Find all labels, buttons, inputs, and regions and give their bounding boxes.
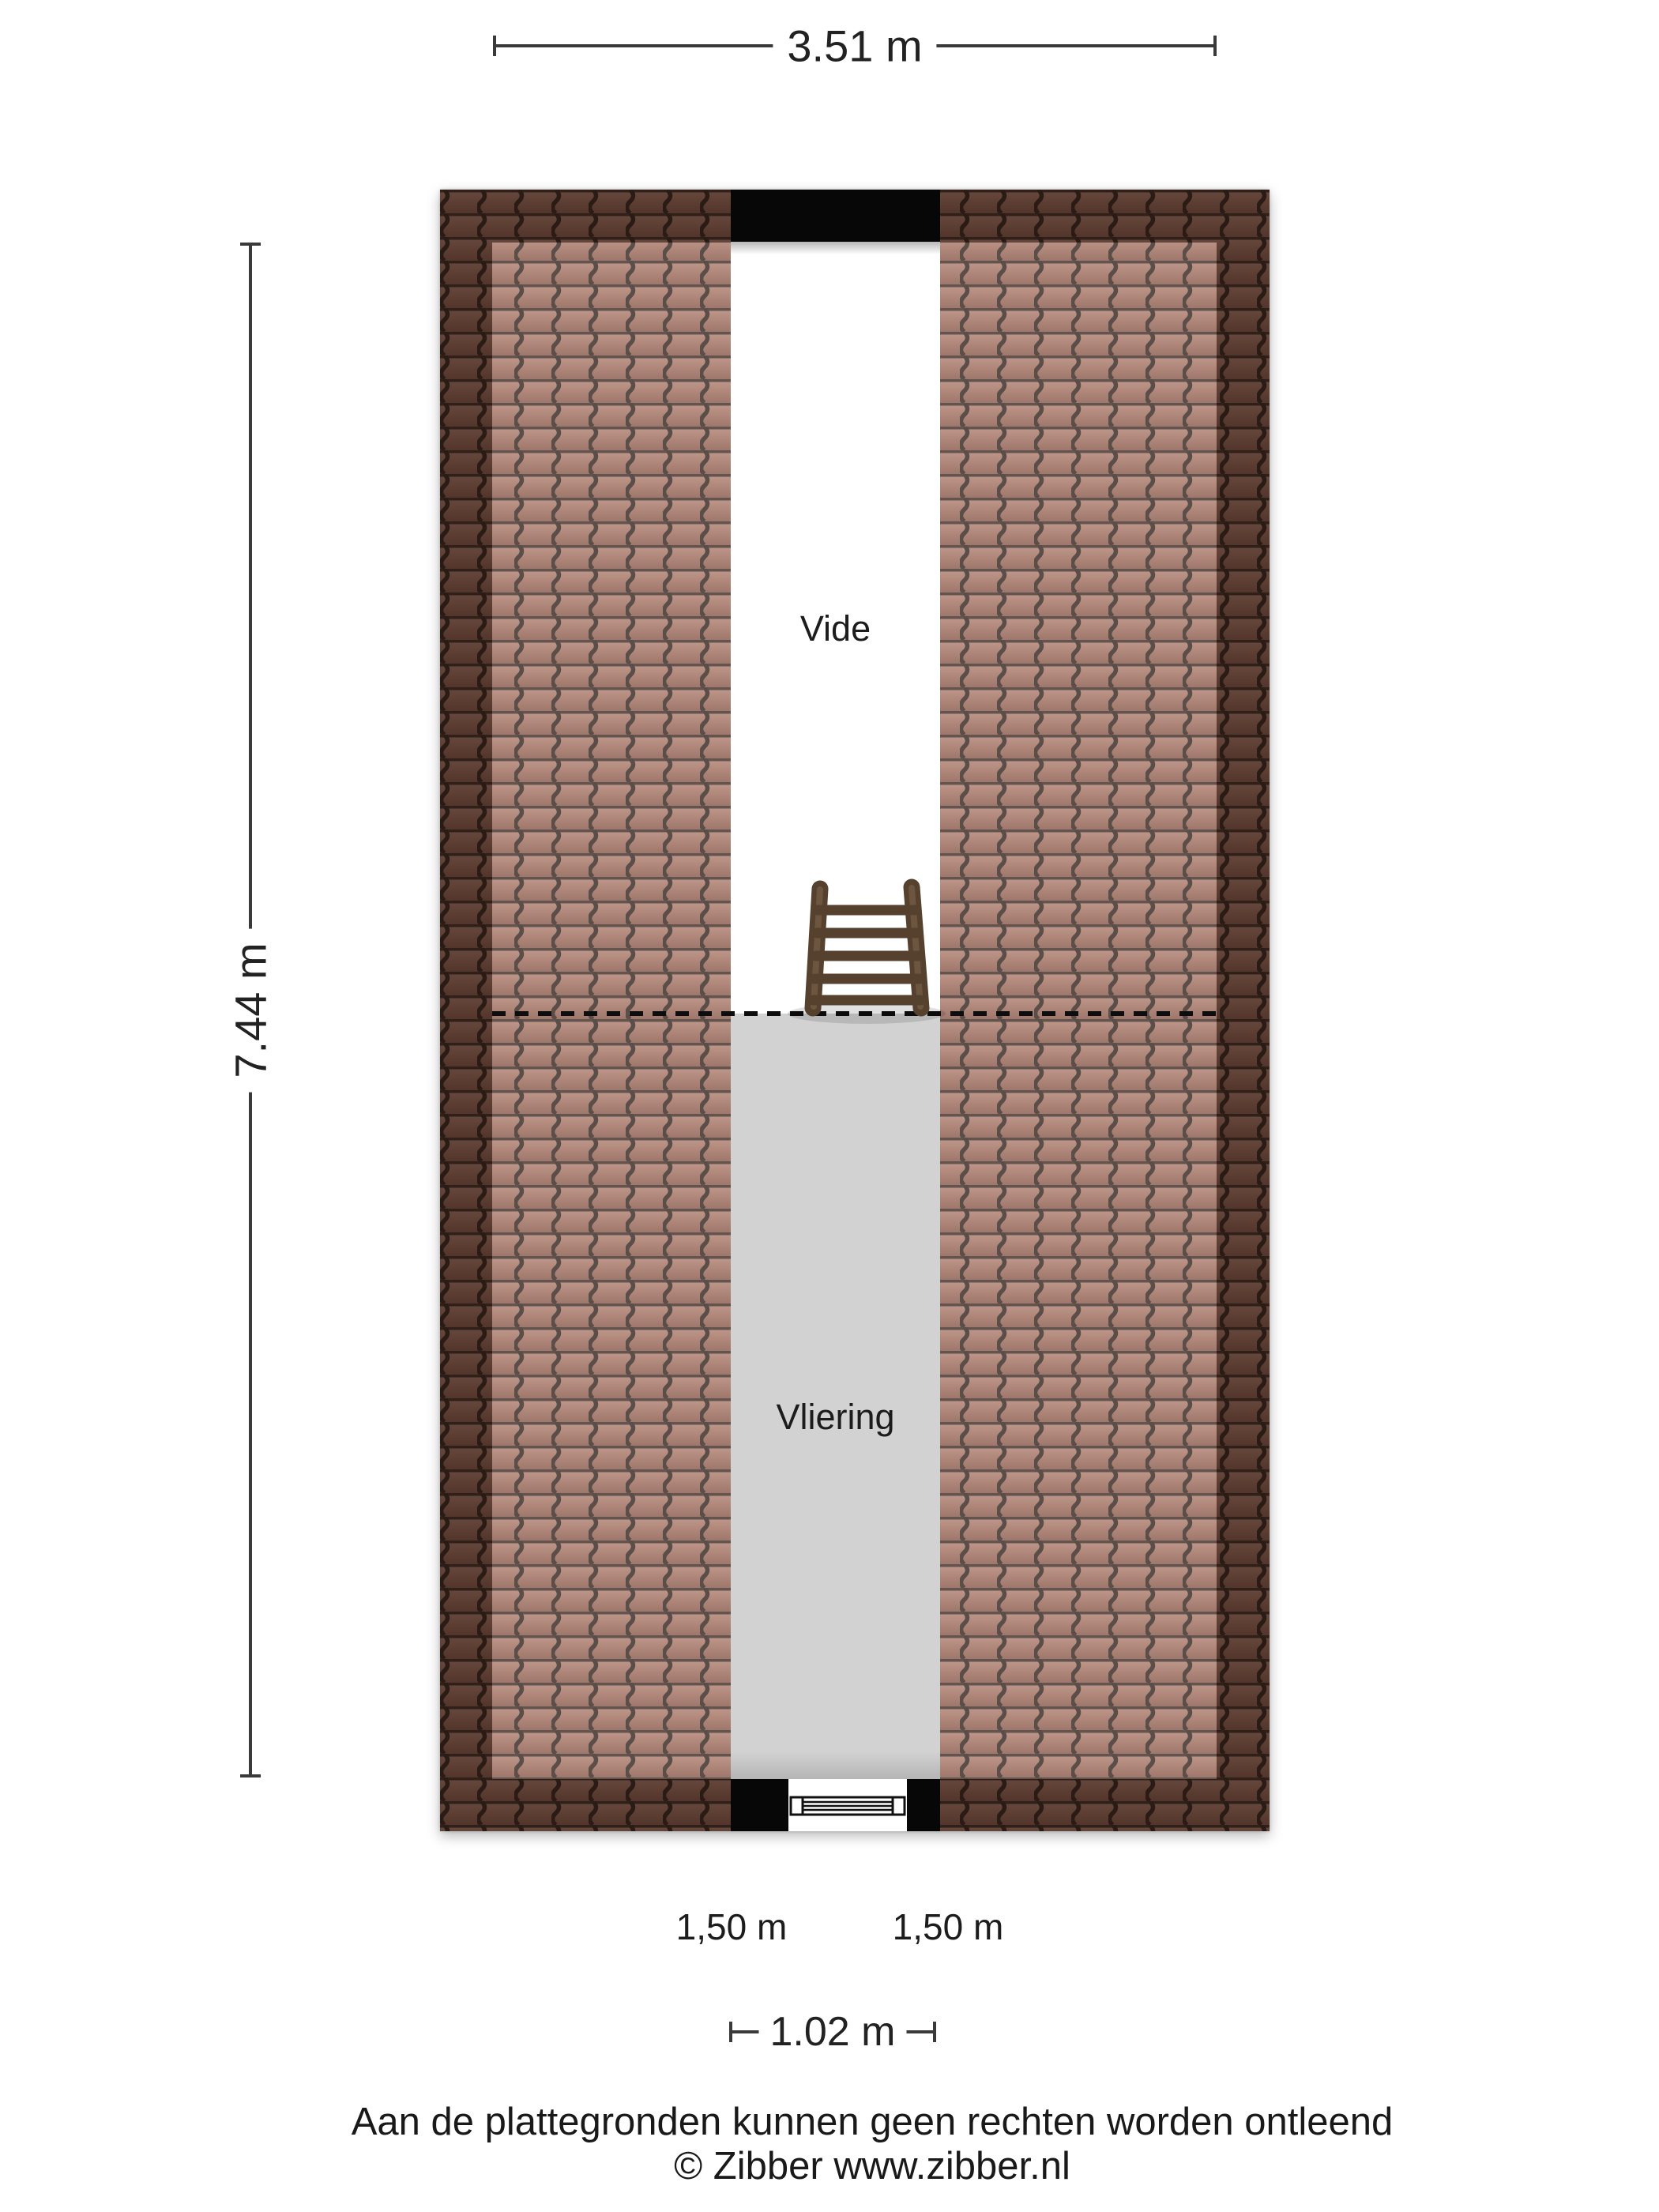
bottom-wall-right [907, 1779, 940, 1831]
floorplan-page: 3.51 m 7.44 m [0, 0, 1659, 2212]
window-symbol [791, 1797, 905, 1815]
top-wall [731, 190, 940, 242]
dimension-bottom-width: 1.02 m [729, 2012, 936, 2052]
dimension-tick [729, 2022, 732, 2042]
dimension-tick [1213, 36, 1217, 56]
room-label-vliering: Vliering [731, 1397, 940, 1438]
dimension-tick [933, 2022, 936, 2042]
floorplan-drawing [440, 190, 1270, 1831]
bottom-wall-left [731, 1779, 788, 1831]
dimension-tick [240, 243, 261, 246]
dimension-left-height: 7.44 m [228, 243, 273, 1777]
dimension-left-label: 7.44 m [225, 928, 276, 1092]
dimension-tick [493, 36, 496, 56]
floorplan-svg [440, 190, 1270, 1831]
dimension-top-width: 3.51 m [493, 24, 1217, 68]
top-wall-shadow [731, 242, 940, 254]
room-label-vide: Vide [731, 608, 940, 649]
dimension-bottom-label: 1.02 m [759, 2008, 907, 2056]
vliering-floor-shadow [731, 1751, 940, 1779]
height-contour-label: 1,50 m [637, 1905, 826, 1948]
height-contour-label: 1,50 m [853, 1905, 1043, 1948]
dimension-top-label: 3.51 m [773, 21, 936, 72]
footer-copyright: © Zibber www.zibber.nl [82, 2144, 1659, 2188]
footer: Aan de plattegronden kunnen geen rechten… [82, 2100, 1659, 2188]
footer-disclaimer: Aan de plattegronden kunnen geen rechten… [82, 2100, 1659, 2144]
dimension-tick [240, 1774, 261, 1777]
